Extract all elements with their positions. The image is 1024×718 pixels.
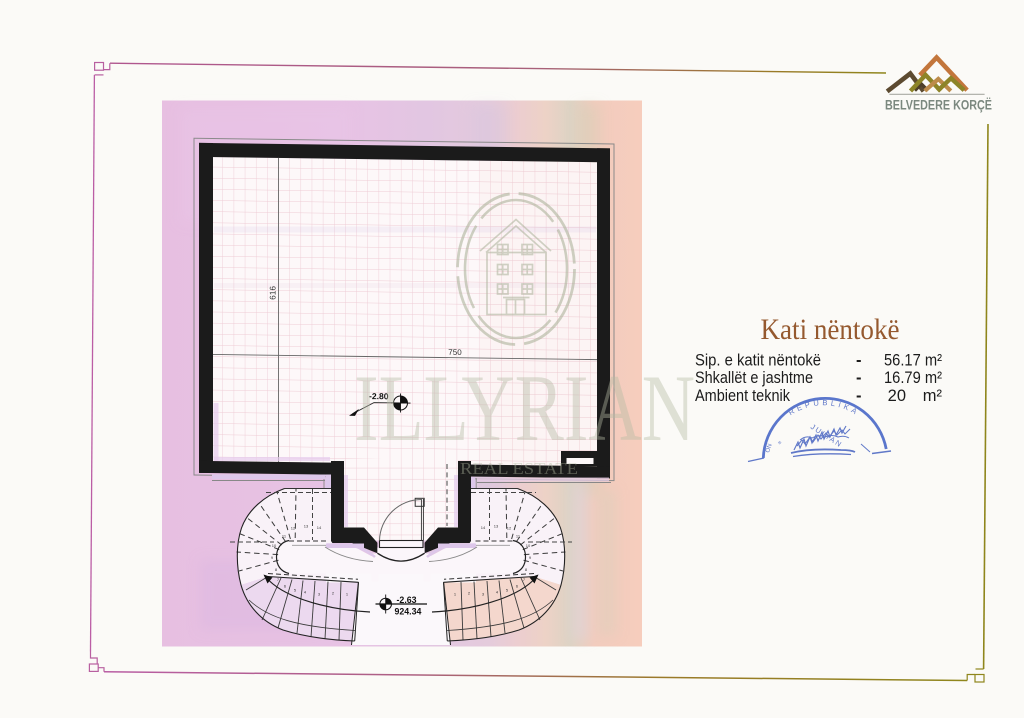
svg-text:12: 12	[507, 526, 512, 531]
svg-text:-: -	[856, 369, 862, 387]
svg-text:13: 13	[494, 524, 499, 529]
svg-text:REAL ESTATE: REAL ESTATE	[460, 459, 578, 478]
svg-text:20: 20	[888, 387, 906, 405]
svg-text:16.79 m²: 16.79 m²	[884, 369, 942, 387]
svg-text:13: 13	[304, 524, 309, 529]
svg-text:10: 10	[526, 543, 531, 548]
svg-text:BELVEDERE KORÇË: BELVEDERE KORÇË	[885, 98, 992, 113]
svg-text:56.17 m²: 56.17 m²	[884, 352, 942, 370]
svg-text:924.34: 924.34	[395, 607, 422, 617]
svg-text:Sip. e katit nëntokë: Sip. e katit nëntokë	[695, 352, 821, 370]
svg-text:10: 10	[272, 543, 277, 548]
svg-text:14: 14	[317, 525, 322, 530]
svg-text:m²: m²	[923, 387, 943, 405]
svg-text:Ambient teknik: Ambient teknik	[695, 387, 791, 405]
svg-text:616: 616	[268, 285, 278, 299]
svg-text:ILLYRIAN: ILLYRIAN	[354, 355, 695, 461]
svg-text:12: 12	[291, 526, 296, 531]
svg-text:Shkallët e jashtme: Shkallët e jashtme	[695, 369, 813, 387]
svg-text:14: 14	[481, 525, 486, 530]
svg-text:Kati nëntokë: Kati nëntokë	[761, 313, 900, 346]
svg-text:-: -	[856, 387, 862, 405]
svg-text:-: -	[856, 352, 862, 370]
svg-text:-2.63: -2.63	[397, 595, 417, 605]
